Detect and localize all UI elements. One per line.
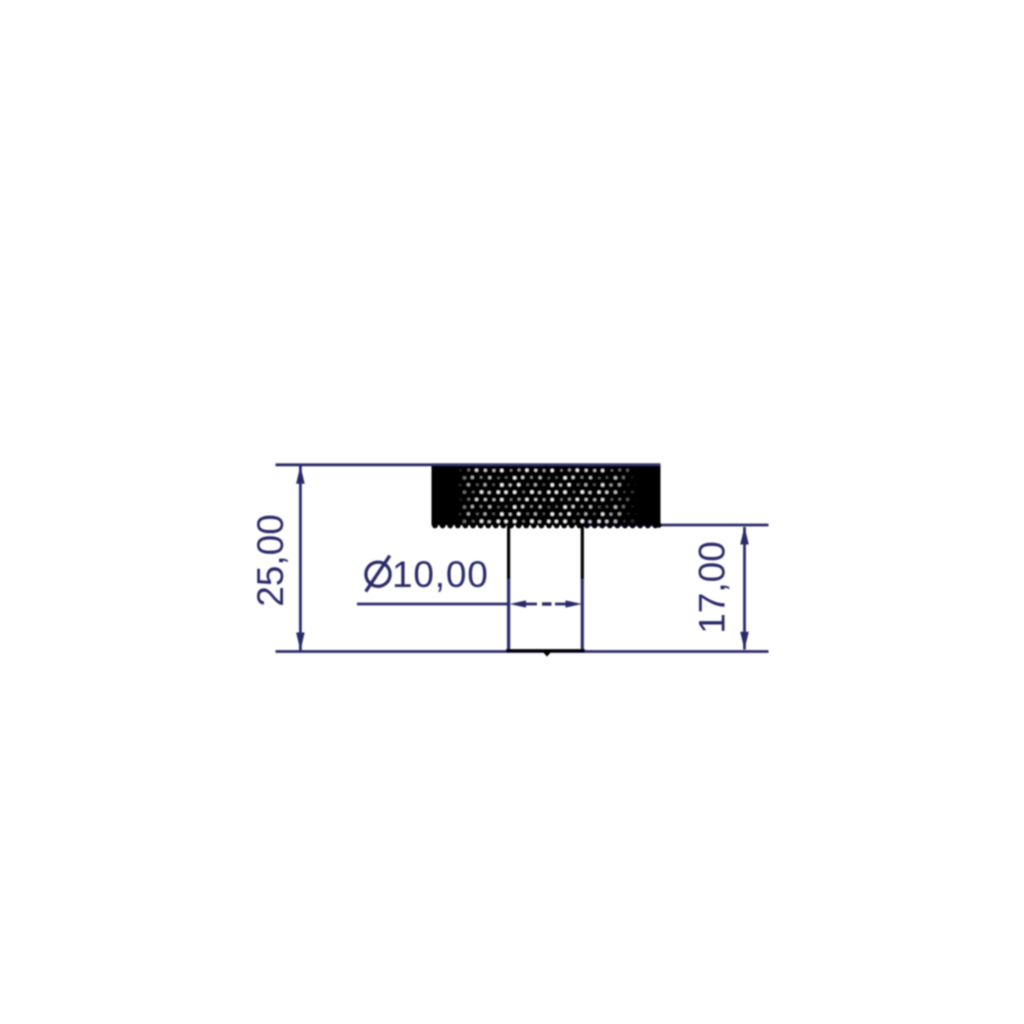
svg-text:17,00: 17,00 <box>692 541 733 634</box>
svg-text:25,00: 25,00 <box>250 514 291 607</box>
svg-text:10,00: 10,00 <box>392 554 489 595</box>
